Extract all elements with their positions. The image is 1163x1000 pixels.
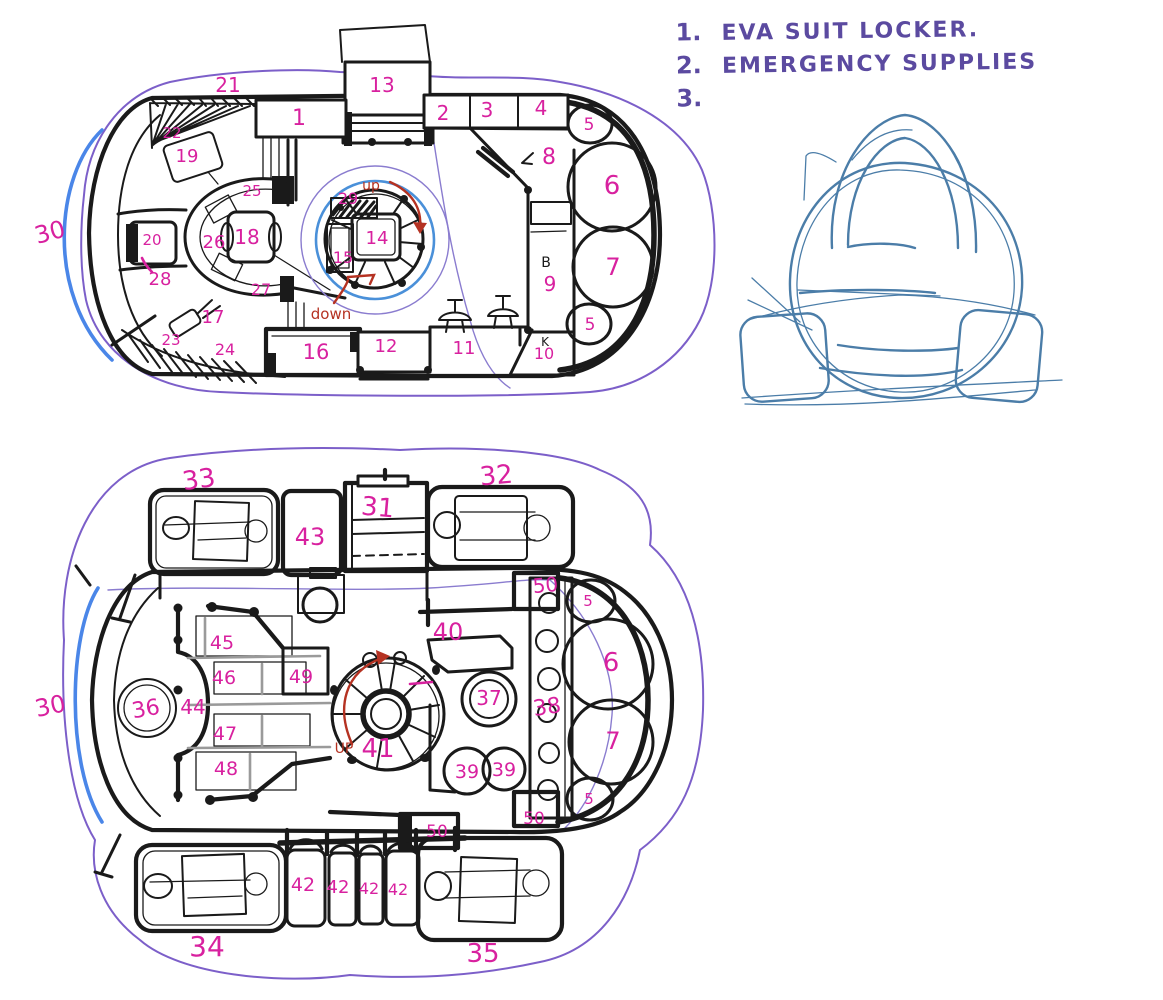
label-21: 21 [215, 73, 240, 97]
label-5: 5 [584, 790, 594, 808]
room-32 [428, 487, 573, 567]
label-down: down [311, 305, 351, 323]
legend-text: EVA SUIT LOCKER. [721, 17, 979, 46]
label-50: 50 [426, 822, 448, 842]
label-43: 43 [295, 523, 326, 551]
room-34 [136, 845, 286, 931]
label-45: 45 [210, 632, 234, 654]
label-26: 26 [203, 232, 226, 253]
label-UP: UP [335, 741, 354, 757]
legend: 1. EVA SUIT LOCKER. 2. EMERGENCY SUPPLIE… [675, 13, 1038, 117]
label-37: 37 [476, 686, 501, 710]
label-16: 16 [303, 340, 330, 364]
label-5: 5 [585, 315, 596, 335]
label-15: 15 [333, 248, 353, 267]
label-32: 32 [479, 460, 515, 493]
label-40: 40 [433, 618, 464, 646]
label-41: 41 [361, 734, 394, 764]
legend-text: EMERGENCY SUPPLIES [722, 49, 1037, 78]
wall-diagonal-8 [470, 128, 528, 188]
label-42: 42 [327, 877, 350, 898]
legend-item-1: 1. EVA SUIT LOCKER. [675, 13, 1037, 51]
label-14: 14 [366, 228, 389, 249]
label-3: 3 [481, 98, 494, 122]
label-31: 31 [360, 492, 396, 525]
sketch-canvas: 2113123458679510111216242317272618141529… [0, 0, 1163, 1000]
label-46: 46 [212, 667, 236, 689]
label-30: 30 [32, 689, 68, 723]
lower-tanks [563, 580, 653, 820]
label-29: 29 [338, 189, 358, 208]
legend-number: 2. [676, 51, 722, 80]
legend-item-3: 3. [676, 79, 1038, 117]
label-13: 13 [369, 73, 394, 97]
label-28: 28 [149, 269, 172, 290]
label-47: 47 [213, 723, 237, 745]
module-13-flare [340, 25, 430, 62]
label-27: 27 [251, 280, 271, 299]
label-42: 42 [359, 879, 379, 898]
label-7: 7 [605, 253, 620, 281]
label-25: 25 [242, 182, 261, 200]
label-7: 7 [605, 727, 620, 755]
label-18: 18 [234, 225, 259, 249]
corridor-9 [528, 150, 574, 332]
label-K: K [541, 335, 550, 349]
label-B: B [541, 255, 551, 271]
label-17: 17 [202, 307, 225, 328]
legend-number: 1. [675, 18, 721, 47]
label-36: 36 [130, 695, 162, 724]
room-33 [150, 490, 278, 574]
label-42: 42 [291, 874, 315, 896]
area-11-wall [430, 327, 528, 345]
room-35 [418, 838, 562, 940]
label-38: 38 [531, 693, 562, 722]
label-39: 39 [455, 761, 479, 783]
label-22: 22 [162, 124, 181, 142]
label-39: 39 [492, 759, 516, 781]
legend-number: 3. [676, 84, 722, 113]
label-50: 50 [523, 809, 545, 829]
label-5: 5 [584, 115, 595, 135]
label-20: 20 [142, 231, 161, 249]
label-24: 24 [215, 340, 235, 359]
label-4: 4 [535, 96, 548, 120]
label-12: 12 [375, 336, 398, 357]
label-5: 5 [583, 592, 593, 610]
module-13-collar [343, 115, 433, 143]
sketch-right-pod [954, 309, 1043, 404]
legend-item-2: 2. EMERGENCY SUPPLIES [676, 46, 1038, 84]
label-19: 19 [176, 146, 199, 167]
label-2: 2 [437, 101, 450, 125]
lower-inflatable-arc [75, 588, 102, 822]
label-48: 48 [214, 758, 238, 780]
sketch-page: 2113123458679510111216242317272618141529… [0, 0, 1163, 1000]
ship-front-sketch [739, 115, 1062, 405]
label-9: 9 [544, 272, 557, 296]
label-44: 44 [180, 695, 205, 719]
label-33: 33 [180, 463, 217, 497]
label-23: 23 [161, 331, 180, 349]
up-arrow-lower [344, 658, 382, 744]
lower-deck-labels: 3343313250540454649443647484137386739395… [32, 460, 620, 969]
label-49: 49 [289, 666, 313, 688]
label-35: 35 [466, 939, 499, 969]
label-34: 34 [189, 930, 225, 963]
label-50: 50 [532, 572, 559, 598]
label-6: 6 [603, 648, 620, 678]
label-42: 42 [388, 880, 408, 899]
label-up: up [362, 178, 380, 194]
label-6: 6 [604, 171, 621, 201]
label-1: 1 [292, 106, 306, 131]
label-11: 11 [453, 338, 476, 359]
label-8: 8 [542, 145, 556, 170]
